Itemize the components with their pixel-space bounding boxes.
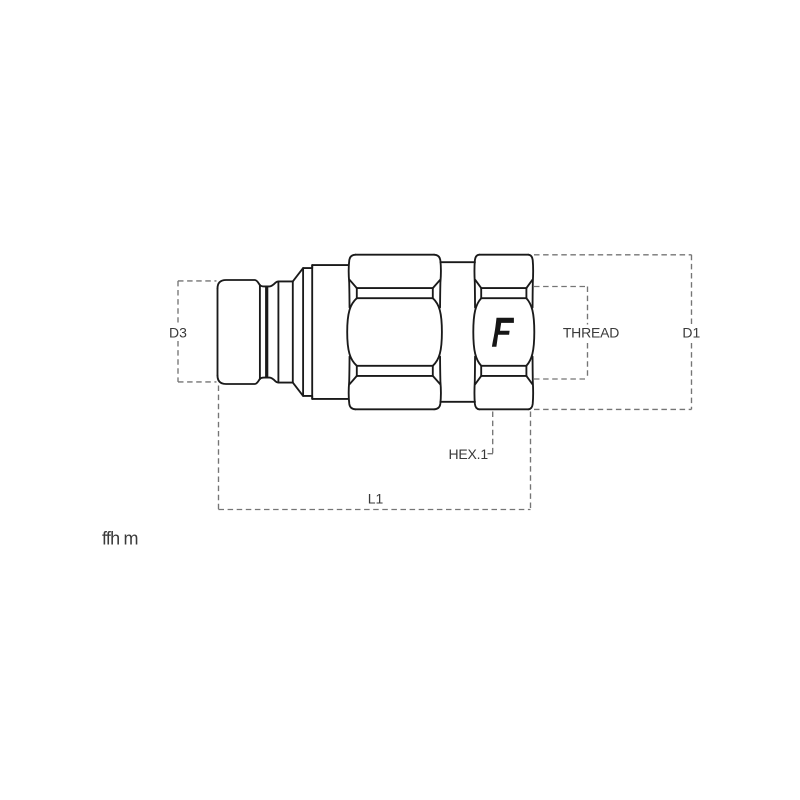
svg-text:THREAD: THREAD [563,325,619,341]
svg-text:ffh m: ffh m [102,528,138,548]
svg-text:L1: L1 [368,490,384,506]
svg-text:HEX.1: HEX.1 [448,446,488,462]
svg-text:D1: D1 [682,325,700,341]
svg-text:D3: D3 [169,324,187,340]
